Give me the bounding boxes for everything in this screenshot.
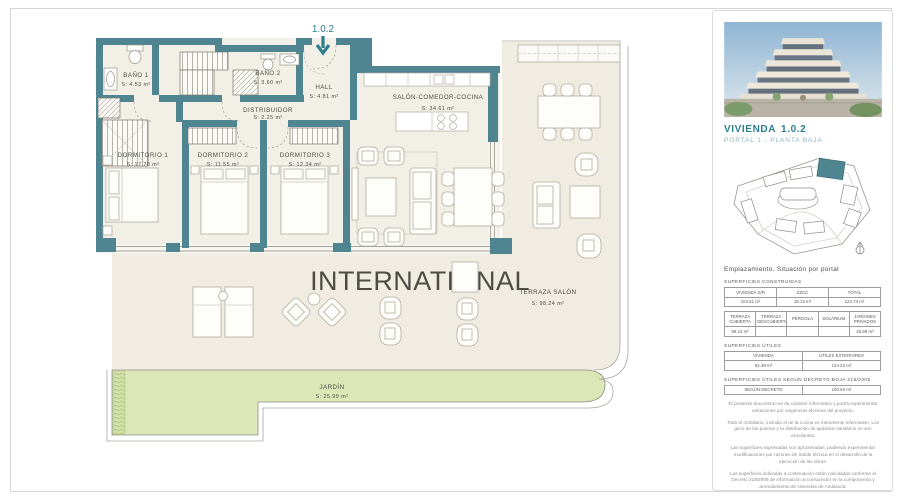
unit-number-label: 1.0.2 bbox=[312, 24, 335, 35]
section-label-useful: SUPERFICIES ÚTILES bbox=[724, 344, 882, 349]
outdoor-armchair-icon bbox=[457, 298, 478, 320]
table-value-cell: 100.53 m² bbox=[803, 385, 881, 395]
outdoor-table bbox=[570, 186, 600, 218]
floor-plan: INTERNATIONAL bbox=[0, 0, 710, 500]
sink-icon bbox=[280, 54, 299, 65]
garden-planting-strip bbox=[113, 371, 125, 434]
side-table-icon bbox=[308, 293, 320, 305]
room-area-dormitorio2: S: 11.55 m² bbox=[207, 162, 239, 168]
room-label-bano1: BAÑO 1 bbox=[123, 72, 149, 79]
room-area-dormitorio3: S: 12.34 m² bbox=[289, 162, 322, 168]
double-bed-icon bbox=[191, 166, 258, 234]
side-table-icon bbox=[219, 292, 228, 301]
table-value-cell bbox=[818, 327, 849, 337]
table-header-cell: TERRAZA CUBIERTA bbox=[725, 312, 756, 327]
room-label-dormitorio1: DORMITORIO 1 bbox=[118, 152, 169, 159]
room-area-bano1: S: 4.53 m² bbox=[121, 82, 150, 88]
table-header-cell: SEGÚN DECRETO bbox=[725, 385, 803, 395]
watermark: INTERNATIONAL bbox=[310, 266, 530, 296]
room-area-jardin: S: 25.99 m² bbox=[316, 394, 349, 400]
armchair-icon bbox=[384, 147, 404, 165]
armchair-icon bbox=[384, 228, 404, 246]
armchair-icon bbox=[358, 147, 378, 165]
room-label-terraza: TERRAZA SALÓN bbox=[519, 289, 576, 296]
armchair-icon bbox=[358, 228, 378, 246]
table-header-cell: ZZCC bbox=[777, 288, 829, 298]
table-value-cell: 91.39 m² bbox=[725, 361, 803, 371]
site-plan bbox=[724, 150, 882, 262]
table-value-cell: 98.24 m² bbox=[725, 327, 756, 337]
table-header-cell: JARDINES PRIVADOS bbox=[849, 312, 880, 327]
section-label-decree: SUPERFICIES ÚTILES SEGÚN DECRETO BOJA 21… bbox=[724, 378, 882, 383]
room-area-bano2: S: 3.60 m² bbox=[253, 80, 282, 86]
section-label-constructed: SUPERFICIES CONSTRUIDAS bbox=[724, 280, 882, 285]
floorplan-brochure-page: INTERNATIONAL bbox=[0, 0, 900, 500]
dining-table-icon bbox=[442, 168, 504, 226]
info-sidebar: VIVIENDA1.0.2 PORTAL 1 - PLANTA BAJA bbox=[712, 10, 893, 491]
table-superficies-construidas: VIVIENDA S/R ZZCC TOTAL 104.61 m² 18.13 … bbox=[724, 287, 881, 307]
coffee-table bbox=[366, 178, 396, 216]
pergola-icon bbox=[518, 45, 620, 62]
disclaimer-paragraph: Las superficies indicadas a continuación… bbox=[726, 471, 880, 491]
kitchen-island bbox=[396, 112, 468, 131]
room-label-salon: SALÓN-COMEDOR-COCINA bbox=[393, 94, 484, 101]
table-superficies-utiles: VIVIENDA ÚTILES EXTERIORES 91.39 m² 124.… bbox=[724, 351, 881, 371]
unit-title: VIVIENDA1.0.2 bbox=[724, 124, 882, 135]
sofa-icon bbox=[410, 168, 436, 234]
table-superficies-exteriores: TERRAZA CUBIERTA TERRAZA DESCUBIERTA PÉR… bbox=[724, 311, 881, 337]
table-value-cell: 25.99 m² bbox=[849, 327, 880, 337]
unit-title-number: 1.0.2 bbox=[781, 124, 806, 135]
table-segun-decreto: SEGÚN DECRETO 100.53 m² bbox=[724, 385, 881, 396]
room-area-dormitorio1: S: 17.70 m² bbox=[127, 162, 160, 168]
kitchen-counter bbox=[364, 73, 490, 86]
room-area-distribuidor: S: 2.25 m² bbox=[253, 115, 282, 121]
table-header-cell: PÉRGOLA bbox=[787, 312, 818, 327]
unit-subtitle: PORTAL 1 - PLANTA BAJA bbox=[724, 137, 882, 144]
outdoor-armchair-icon bbox=[380, 297, 401, 319]
table-header-cell: TOTAL bbox=[829, 288, 881, 298]
outdoor-table bbox=[452, 262, 478, 292]
sun-lounger-icon bbox=[193, 287, 221, 337]
siteplan-caption: Emplazamiento. Situación por portal bbox=[724, 266, 882, 273]
table-value-cell bbox=[787, 327, 818, 337]
building-photo bbox=[724, 22, 882, 117]
room-area-salon: S: 34.61 m² bbox=[422, 106, 455, 112]
table-header-cell: VIVIENDA bbox=[725, 351, 803, 361]
room-label-hall: HALL bbox=[315, 84, 332, 91]
disclaimer-paragraph: El presente documento es de carácter inf… bbox=[726, 401, 880, 415]
room-label-dormitorio2: DORMITORIO 2 bbox=[198, 152, 249, 159]
tv-unit bbox=[352, 168, 358, 220]
outdoor-dining-table-icon bbox=[538, 84, 600, 140]
sink-icon bbox=[104, 68, 117, 90]
table-header-cell: SOLÁRIUM bbox=[818, 312, 849, 327]
table-value-cell: 18.13 m² bbox=[777, 297, 829, 307]
table-value-cell: 104.61 m² bbox=[725, 297, 777, 307]
table-value-cell: 124.23 m² bbox=[803, 361, 881, 371]
highlighted-portal bbox=[817, 158, 845, 179]
kitchen-sink-icon bbox=[434, 75, 443, 84]
garden bbox=[112, 370, 605, 435]
outdoor-armchair-icon bbox=[577, 234, 601, 258]
outdoor-armchair-icon bbox=[380, 323, 401, 345]
table-value-cell bbox=[756, 327, 787, 337]
outdoor-sofa-icon bbox=[533, 182, 560, 228]
double-bed-icon bbox=[271, 166, 338, 234]
disclaimer-paragraph: Todo el mobiliario, incluido el de la co… bbox=[726, 420, 880, 440]
disclaimer-paragraph: Las superficies expresadas son aproximad… bbox=[726, 445, 880, 465]
room-label-distribuidor: DISTRIBUIDOR bbox=[243, 107, 293, 114]
sun-lounger-icon bbox=[225, 287, 253, 337]
table-header-cell: VIVIENDA S/R bbox=[725, 288, 777, 298]
room-area-hall: S: 4.81 m² bbox=[309, 94, 338, 100]
table-header-cell: ÚTILES EXTERIORES bbox=[803, 351, 881, 361]
room-area-terraza: S: 98.24 m² bbox=[532, 301, 565, 307]
legal-disclaimers: El presente documento es de carácter inf… bbox=[724, 401, 882, 491]
table-header-cell: TERRAZA DESCUBIERTA bbox=[756, 312, 787, 327]
room-label-jardin: JARDÍN bbox=[319, 384, 344, 391]
outdoor-armchair-icon bbox=[457, 324, 478, 346]
unit-title-text: VIVIENDA bbox=[724, 124, 776, 135]
outdoor-armchair-icon bbox=[575, 153, 598, 176]
table-value-cell: 122.74 m² bbox=[829, 297, 881, 307]
room-label-dormitorio3: DORMITORIO 3 bbox=[280, 152, 331, 159]
room-label-bano2: BAÑO 2 bbox=[255, 70, 281, 77]
